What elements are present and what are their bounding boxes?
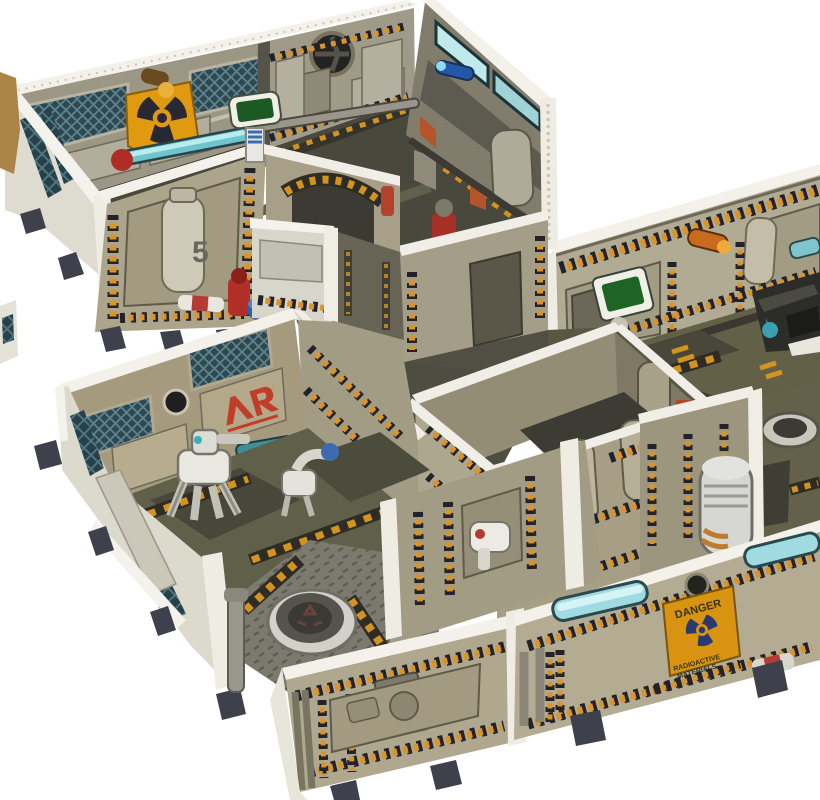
svg-text:5: 5 — [192, 236, 209, 269]
